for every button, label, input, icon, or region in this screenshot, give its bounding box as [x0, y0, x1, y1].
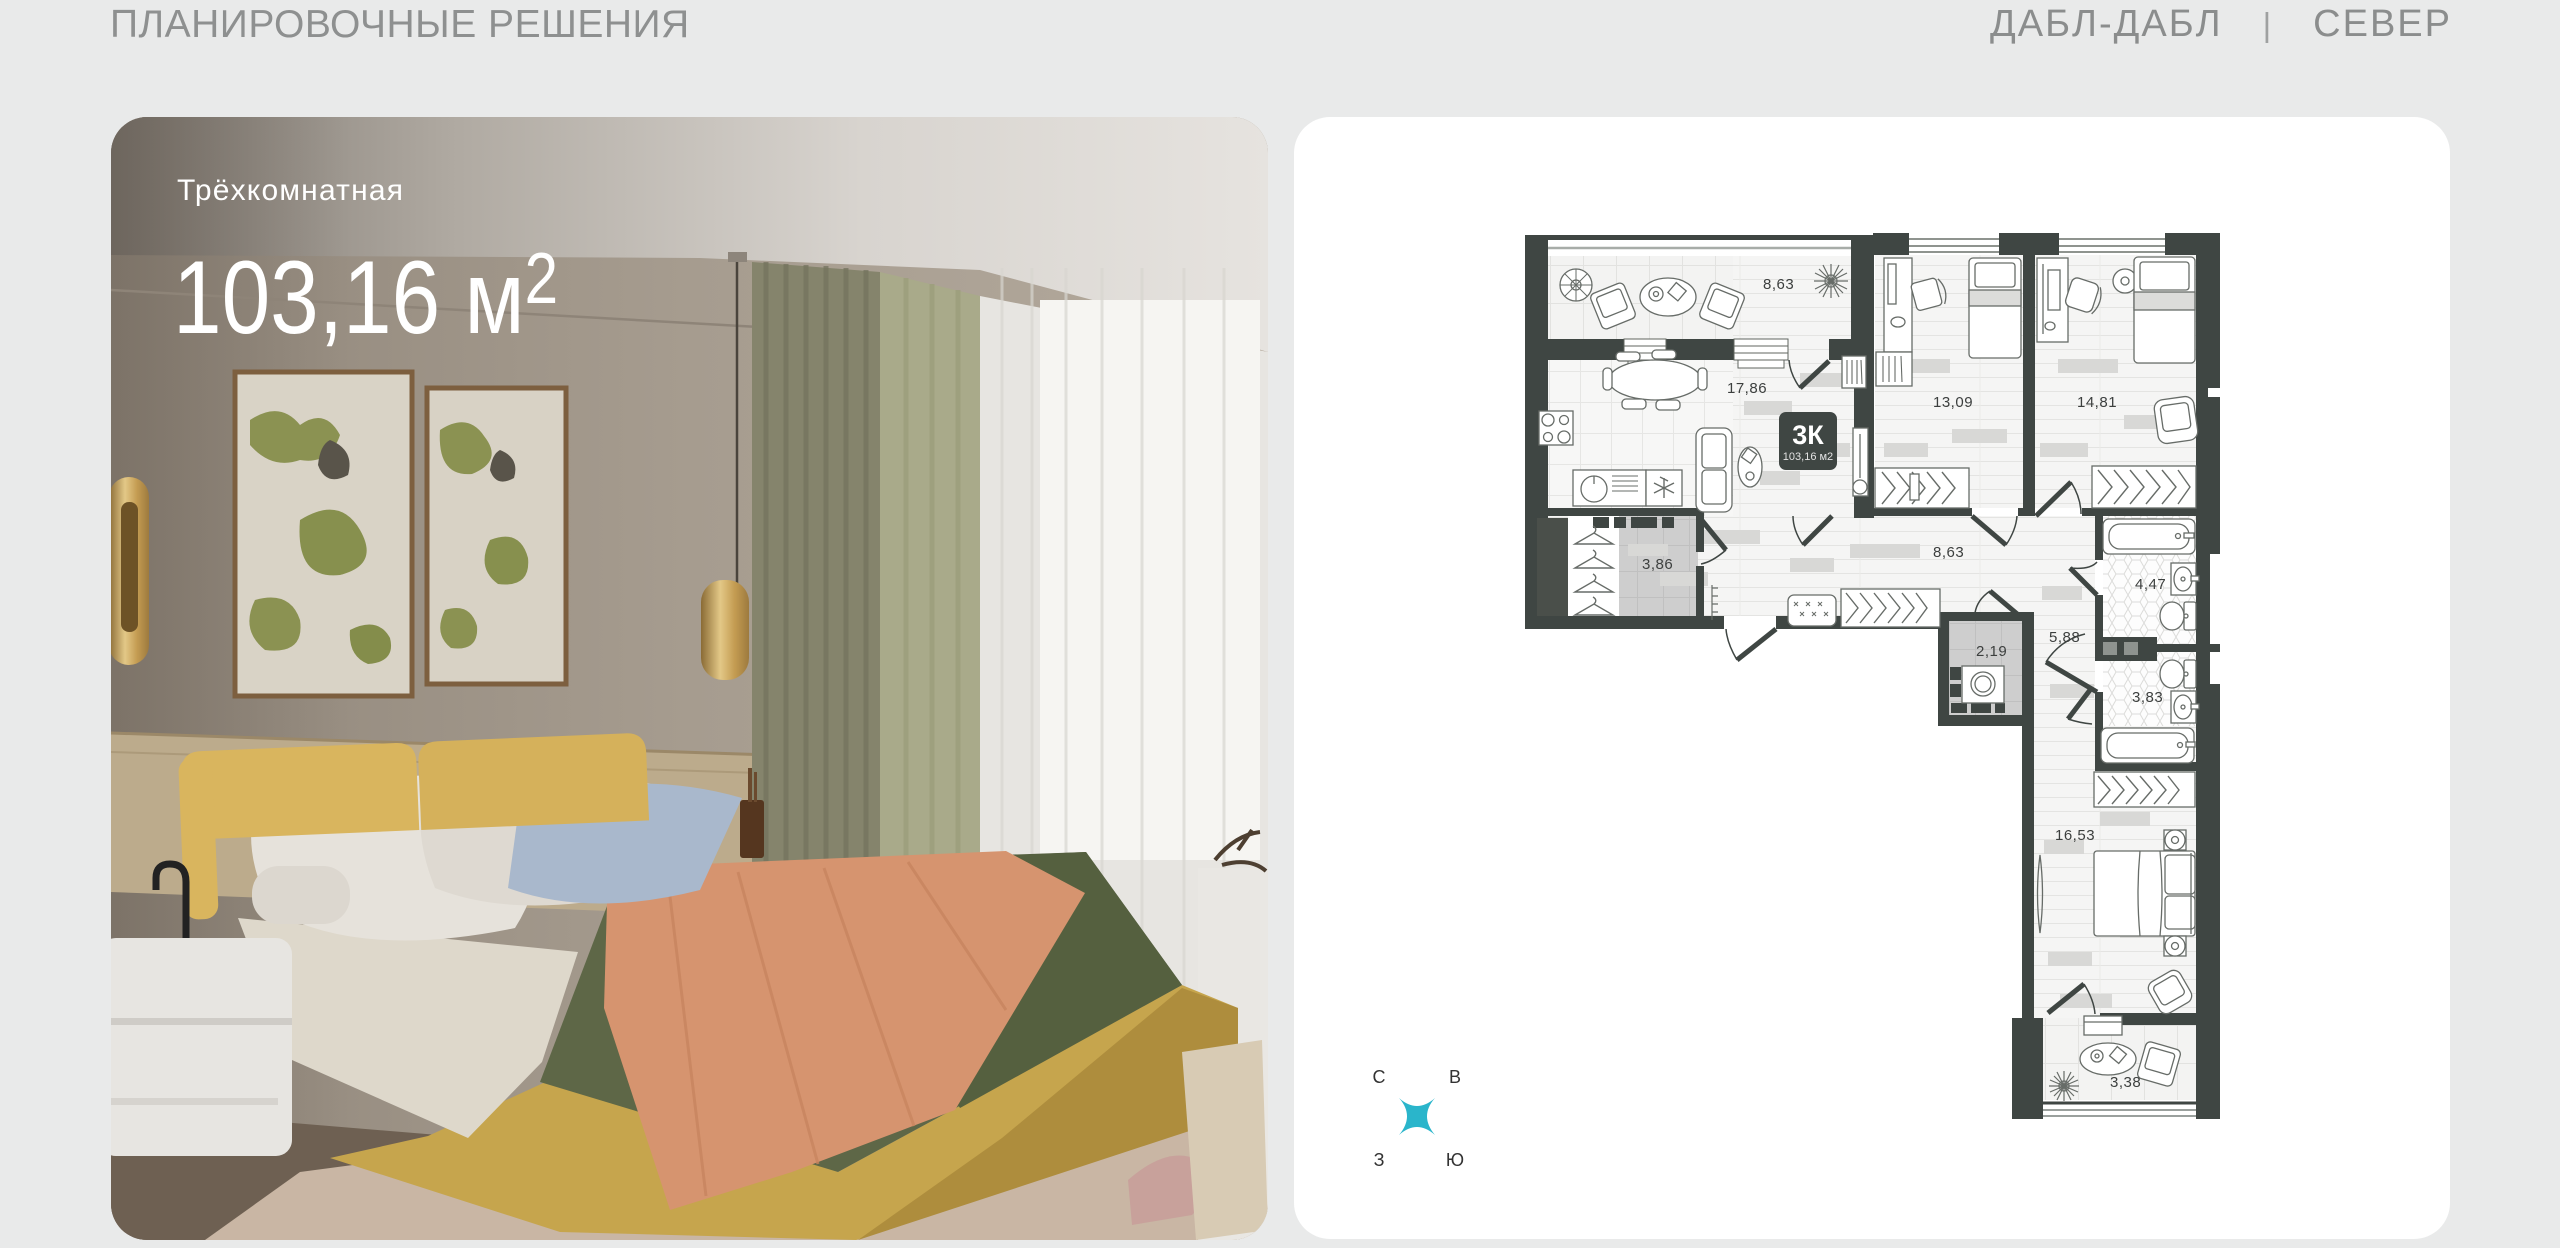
svg-text:16,53: 16,53	[2055, 827, 2095, 844]
svg-text:14,81: 14,81	[2077, 394, 2117, 411]
svg-text:Ю: Ю	[1446, 1150, 1464, 1170]
svg-text:13,09: 13,09	[1933, 394, 1973, 411]
svg-text:8,63: 8,63	[1763, 276, 1794, 293]
svg-text:3,38: 3,38	[2110, 1074, 2141, 1091]
svg-text:4,47: 4,47	[2135, 576, 2166, 593]
svg-text:3,83: 3,83	[2132, 689, 2163, 706]
svg-text:2,19: 2,19	[1976, 643, 2007, 660]
svg-text:8,63: 8,63	[1933, 544, 1964, 561]
svg-text:17,86: 17,86	[1727, 380, 1767, 397]
svg-text:З: З	[1374, 1150, 1385, 1170]
svg-text:3К: 3К	[1792, 420, 1824, 450]
svg-text:3,86: 3,86	[1642, 556, 1673, 573]
svg-text:В: В	[1449, 1067, 1461, 1087]
svg-text:С: С	[1373, 1067, 1386, 1087]
svg-text:103,16 м2: 103,16 м2	[1783, 451, 1833, 463]
svg-text:5,88: 5,88	[2049, 629, 2080, 646]
